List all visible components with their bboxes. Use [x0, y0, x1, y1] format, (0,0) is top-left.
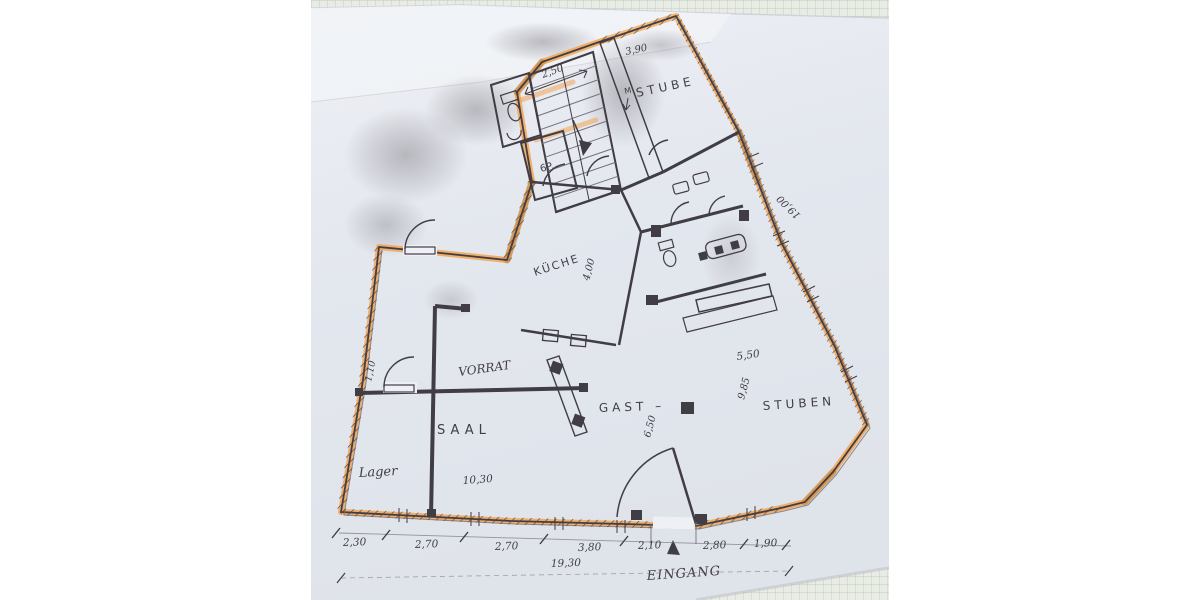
- dim-saal-width: 10,30: [462, 473, 493, 487]
- room-label-lager: Lager: [357, 464, 398, 481]
- dim-chain-4: 2,10: [637, 539, 662, 552]
- dim-chain-5: 2,80: [702, 539, 727, 552]
- room-label-gast: GAST –: [599, 399, 666, 415]
- floor-plan-drawing: 6P. 2,50 STUBE 3,90 M: [311, 0, 889, 600]
- room-label-saal: SAAL: [437, 423, 491, 438]
- dim-total-width: 19,30: [551, 557, 582, 570]
- scanned-floorplan-photo: 6P. 2,50 STUBE 3,90 M: [311, 0, 889, 600]
- dim-chain-2: 2,70: [494, 540, 519, 553]
- dim-chain-1: 2,70: [414, 538, 439, 551]
- screenshot-root: 6P. 2,50 STUBE 3,90 M: [0, 0, 1200, 600]
- dim-chain-3: 3,80: [578, 541, 602, 554]
- dim-chain-0: 2,30: [342, 536, 367, 549]
- dim-chain-6: 1,90: [754, 537, 778, 550]
